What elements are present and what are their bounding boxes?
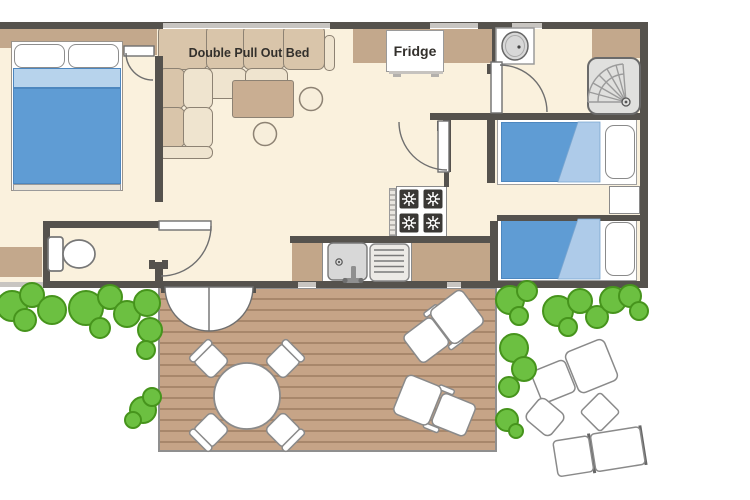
stove <box>396 186 447 238</box>
window-top-living <box>163 23 330 28</box>
door-hinge <box>437 121 451 131</box>
wall-counter-edge <box>290 236 494 243</box>
door-hinge <box>248 287 256 293</box>
bush <box>0 283 66 331</box>
wall-bottom <box>43 281 640 288</box>
left-bottom-wardrobe <box>0 247 42 277</box>
wall-bedroom3-left <box>490 221 498 281</box>
master-bed-footboard <box>13 184 121 191</box>
bush <box>125 388 161 428</box>
master-bed-sheet <box>13 68 121 88</box>
window-top-showerroom <box>512 23 542 28</box>
garden-table <box>580 392 620 432</box>
door-hinge <box>162 260 168 269</box>
door-hinge <box>161 287 169 293</box>
bush <box>69 285 140 338</box>
wall-right <box>640 22 648 288</box>
door-hinge <box>487 64 501 74</box>
floorplan-canvas: Double Pull Out Bed Fridge <box>0 0 750 500</box>
master-bed-pillow <box>68 44 119 68</box>
master-bed-blanket <box>13 88 121 184</box>
single-bed-1-pillow <box>605 125 635 179</box>
kitchen-sink-unit <box>322 239 412 284</box>
bush <box>499 334 536 397</box>
wall-wc-left <box>43 221 50 281</box>
sofa-seat-cushion <box>183 107 213 148</box>
window-bottom-living <box>298 282 316 287</box>
wall-showerroom-left <box>492 28 498 63</box>
bush <box>600 285 648 320</box>
wall-beds-divider <box>497 215 640 221</box>
sun-lounger <box>529 338 620 409</box>
fridge: Fridge <box>386 30 444 72</box>
fridge-foot <box>393 74 401 77</box>
sun-lounger <box>552 425 647 479</box>
shower-room-wardrobe <box>592 29 645 58</box>
sofa-bed-label: Double Pull Out Bed <box>170 42 328 64</box>
master-wardrobe-corner <box>123 29 157 55</box>
wall-hall-left-thin <box>444 172 449 187</box>
master-bed-pillow <box>14 44 65 68</box>
single-bed-1-blanket <box>501 122 582 182</box>
wall-master-right-upper <box>155 56 163 202</box>
wall-bedroom2-left <box>487 113 495 183</box>
single-bed-2-blanket <box>501 219 582 279</box>
sofa-seat-cushion <box>183 68 213 109</box>
door-hinge <box>149 260 155 269</box>
window-bottom-left <box>0 282 43 287</box>
single-bed-2-pillow <box>605 222 635 276</box>
window-top-kitchen <box>430 23 478 28</box>
bush <box>543 289 608 336</box>
coffee-table <box>232 80 294 118</box>
garden-chair <box>524 396 567 438</box>
sofa-armrest-bottom <box>158 146 213 159</box>
wall-hall-top <box>430 113 648 120</box>
bush <box>496 409 523 438</box>
nightstand <box>609 186 640 214</box>
wood-deck <box>158 287 497 452</box>
fridge-foot <box>431 74 439 77</box>
stove-vent <box>389 188 396 236</box>
wall-wc-top <box>43 221 162 228</box>
window-bottom-hall <box>447 282 461 287</box>
